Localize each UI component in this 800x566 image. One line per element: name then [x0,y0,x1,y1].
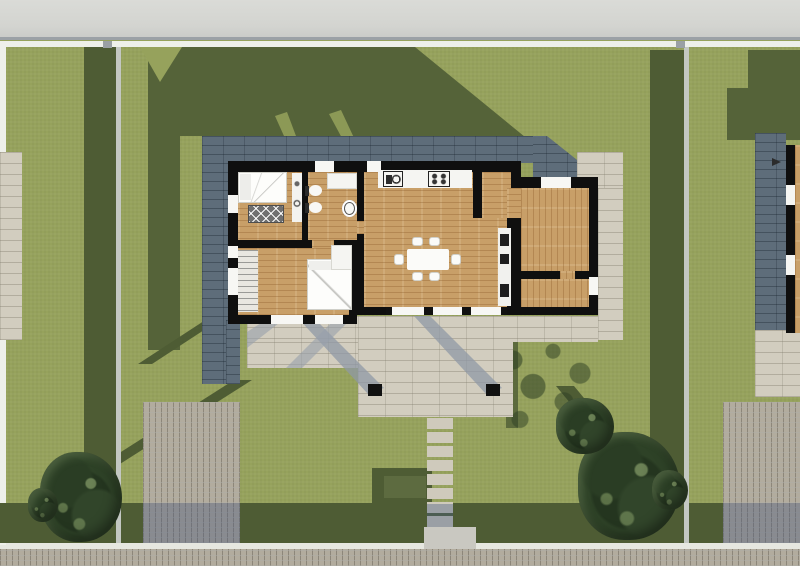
kitchen-tall-units [498,228,511,306]
pillow-top-bedroom [240,174,251,200]
left-divider-fence [116,47,121,543]
pergola-post-left [368,384,382,396]
wc-basin [342,200,357,217]
neighbor-right-wall [786,145,795,333]
wall-corridor-left [228,240,312,248]
window-top-1 [315,161,334,172]
wall-rightwing-divider [517,271,589,279]
tree-right-lobe-lower [652,470,688,510]
sliding-door-mullion-2 [462,307,471,315]
door-gap-bath [357,221,364,234]
bath-vanity [292,173,302,222]
pergola-post-right [486,384,500,396]
neighbor-left-terrace [0,152,22,340]
window-bottom-1 [271,315,303,324]
toilet-bowl [309,185,322,196]
neighbor-right-window-1 [786,185,795,205]
wardrobe-lower-bedroom [238,250,258,312]
tree-right-lobe-upper [556,398,614,454]
rug-diamond [248,205,284,223]
neighbor-right-floor [795,145,800,333]
right-divider-fence [684,47,689,543]
neighbor-right-paving [755,330,800,397]
walkway-slab-1 [427,418,453,429]
dining-chair-5 [394,254,404,265]
window-left-1 [228,195,238,213]
left-divider-post [103,41,112,48]
dining-chair-1 [412,237,423,246]
sliding-door-end-2 [501,307,507,315]
walkway-slab-5 [427,474,453,485]
road-top-edge-line [0,37,800,40]
window-bottom-2 [315,315,343,324]
driveway-left-shade [143,503,240,543]
walkway-slab-4 [427,460,453,471]
neighbor-right-window-2 [786,255,795,275]
dining-chair-3 [412,272,423,281]
kitchen-sink-unit [383,171,403,187]
site-plan-rendering [0,0,800,566]
sliding-door-mullion-1 [424,307,433,315]
wall-step [511,172,521,188]
kitchen-stove [428,171,450,187]
window-left-2 [228,246,238,258]
floor-room-right-upper [521,188,589,271]
tree-left-lobe [28,488,58,522]
floor-room-right-lower [521,279,589,307]
walkway-slab-3 [427,446,453,457]
walkway-slab-6 [427,488,453,499]
walkway-slab-2 [427,432,453,443]
door-gap-rightwing [560,271,575,279]
driveway-right-shade [723,503,800,543]
road-top [0,0,800,40]
window-right-wall [589,277,598,295]
dining-table [407,249,449,270]
slab-shadow-top [202,136,533,163]
open-door-leaf [331,245,352,270]
walkway-shadow-inner [384,476,426,498]
entry-pad [424,527,476,549]
window-left-3 [228,268,238,295]
floor-passage [507,188,521,218]
paving-right-band [598,188,623,340]
slab-shadow-left [202,136,228,384]
dining-chair-4 [429,272,440,281]
dining-chair-2 [429,237,440,246]
dining-chair-6 [451,254,461,265]
window-wing-top [541,177,571,188]
slab-shadow-left-lower [226,320,240,384]
right-divider-post [676,41,685,48]
road-bottom [0,549,800,566]
sliding-door [388,307,507,315]
bidet-bowl [309,202,322,213]
bath-cabinet [327,173,357,189]
wall-kitchen-stub [473,161,482,218]
sliding-door-end-1 [386,307,392,315]
